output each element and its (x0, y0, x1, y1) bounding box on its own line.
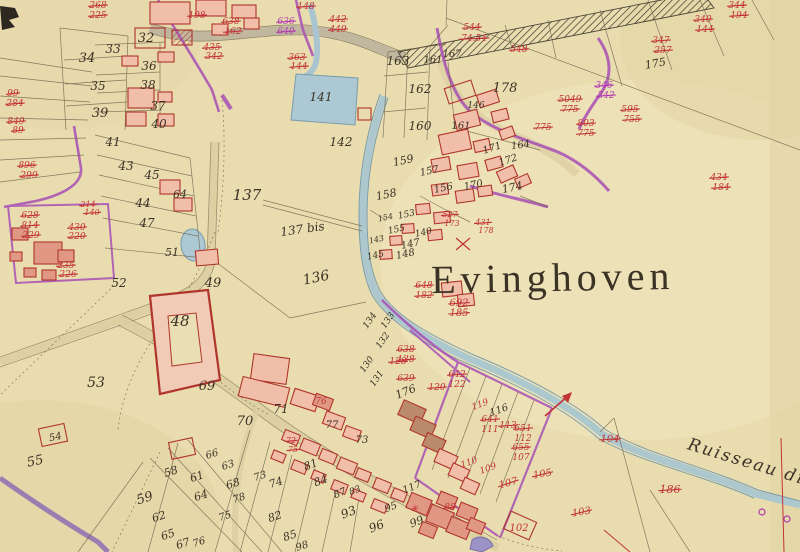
parcel-number-label: 45 (143, 168, 159, 182)
parcel-number-label: 36 (141, 59, 157, 73)
parcel-number-label: 146 (467, 101, 484, 111)
parcel-number-label: 137 (233, 186, 262, 204)
parcel-number-label: 39 (92, 106, 109, 121)
building (24, 268, 36, 277)
building (244, 18, 259, 29)
parcel-number-label: 47 (138, 216, 155, 230)
parcel-number-label: 167 (442, 49, 462, 60)
parcel-number-label: 41 (104, 135, 120, 149)
building (158, 52, 174, 62)
parcel-number-label: 33 (105, 42, 121, 56)
parcel-number-label: 178 (493, 81, 518, 96)
parcel-number-label: 44 (134, 196, 150, 210)
building (42, 270, 56, 280)
revision-number-label: 102 (509, 523, 528, 534)
parcel-number-label: 38 (140, 78, 156, 92)
parcel-number-label: 160 (409, 119, 432, 133)
revision-number-label: 111 (481, 425, 498, 435)
building (122, 56, 138, 66)
revision-number-label: 178 (478, 226, 493, 235)
revision-number-label: 122 (448, 380, 465, 390)
parcel-number-label: 162 (409, 82, 432, 96)
parcel-number-label: 161 (423, 55, 442, 66)
parcel-number-label: 34 (79, 51, 96, 66)
parcel-number-label: 40 (150, 117, 167, 131)
parcel-number-label: 48 (169, 312, 189, 330)
building (172, 30, 192, 45)
parcel-number-label: 142 (330, 135, 353, 149)
revision-number-label: 173 (444, 219, 459, 228)
building (457, 162, 479, 179)
map-canvas: 3433323536383740394143454464475152494853… (0, 0, 800, 552)
parcel-number-label: 32 (138, 31, 155, 46)
parcel-number-label: 64 (173, 188, 187, 201)
parcel-number-label: 51 (165, 246, 179, 259)
parcel-number-label: 71 (273, 402, 288, 416)
parcel-number-label: 43 (117, 159, 134, 173)
building (10, 252, 22, 261)
place-name-label: Evinghoven (431, 253, 675, 302)
building (416, 203, 431, 214)
parcel-number-label: 70 (237, 414, 254, 429)
revision-number-label: 107 (512, 453, 529, 463)
parcel-number-label: 141 (310, 90, 333, 104)
building (150, 2, 190, 24)
parcel-number-label: 35 (90, 79, 105, 93)
building (195, 249, 218, 266)
parcel-number-label: 49 (204, 276, 222, 291)
parcel-number-label: 52 (111, 276, 126, 290)
parcel-number-label: 73 (356, 435, 369, 446)
parcel-number-label: 69 (199, 379, 216, 394)
building (126, 112, 146, 126)
parcel-number-label: 77 (326, 420, 339, 431)
parcel-number-label: 163 (387, 54, 410, 68)
parcel-number-label: 161 (451, 121, 470, 132)
revision-number-label: ✳ (410, 504, 419, 515)
parcel-number-label: 37 (150, 99, 166, 113)
parcel-number-label: 53 (87, 375, 105, 391)
revision-number-label: 76 (315, 397, 327, 407)
